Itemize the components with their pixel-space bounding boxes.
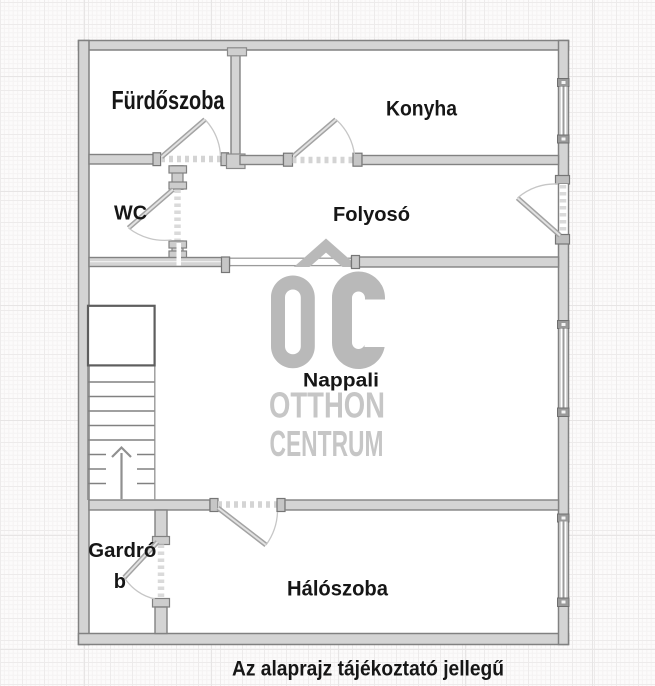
svg-text:Gardró: Gardró bbox=[88, 540, 156, 562]
svg-text:Hálószoba: Hálószoba bbox=[287, 577, 389, 601]
svg-text:WC: WC bbox=[114, 203, 147, 225]
svg-text:b: b bbox=[114, 571, 126, 593]
svg-text:CENTRUM: CENTRUM bbox=[270, 423, 384, 464]
svg-text:Konyha: Konyha bbox=[386, 98, 457, 121]
svg-text:Az alaprajz tájékoztató jelleg: Az alaprajz tájékoztató jellegű bbox=[232, 658, 504, 681]
svg-text:Folyosó: Folyosó bbox=[333, 204, 410, 226]
svg-text:Nappali: Nappali bbox=[303, 371, 379, 392]
svg-text:Fürdőszoba: Fürdőszoba bbox=[112, 85, 225, 115]
